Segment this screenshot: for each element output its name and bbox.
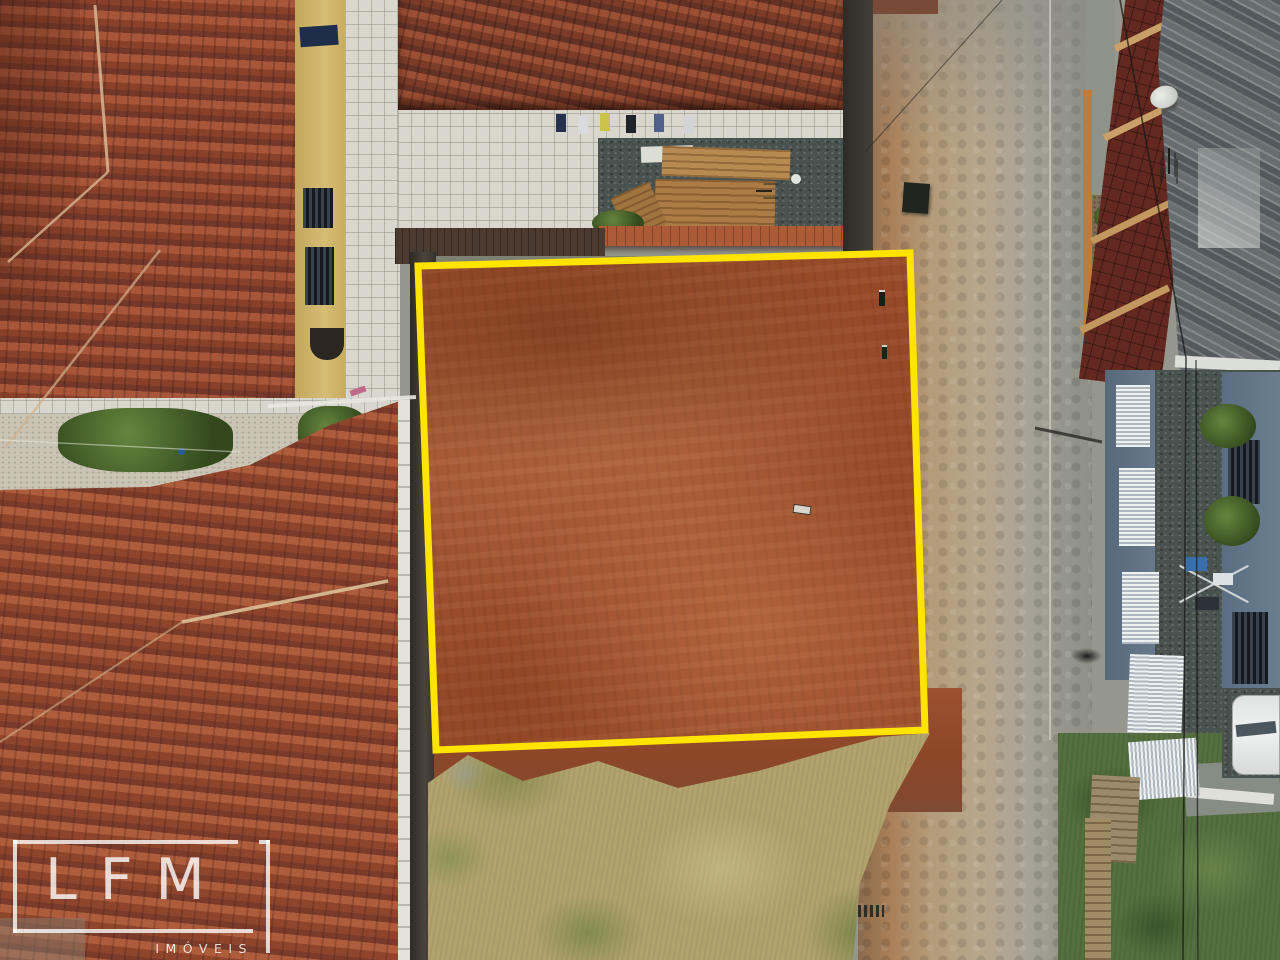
power-cable (1196, 360, 1198, 960)
plot-boundary-outline (418, 253, 925, 750)
power-cable (865, 0, 1002, 152)
roof-ridge (182, 581, 388, 622)
roof-ridge (95, 5, 108, 172)
roof-hip (0, 622, 182, 742)
aerial-photo: LFM IMÓVEIS (0, 0, 1280, 960)
power-cable (1120, 0, 1186, 358)
utility-pole-arm (1035, 428, 1102, 442)
overlay-lines (0, 0, 1280, 960)
clothes-line (0, 440, 240, 452)
white-gutter-pipe (268, 397, 416, 406)
roof-ridge (8, 172, 108, 262)
power-cable (1183, 358, 1186, 960)
roof-ridge (5, 250, 160, 448)
